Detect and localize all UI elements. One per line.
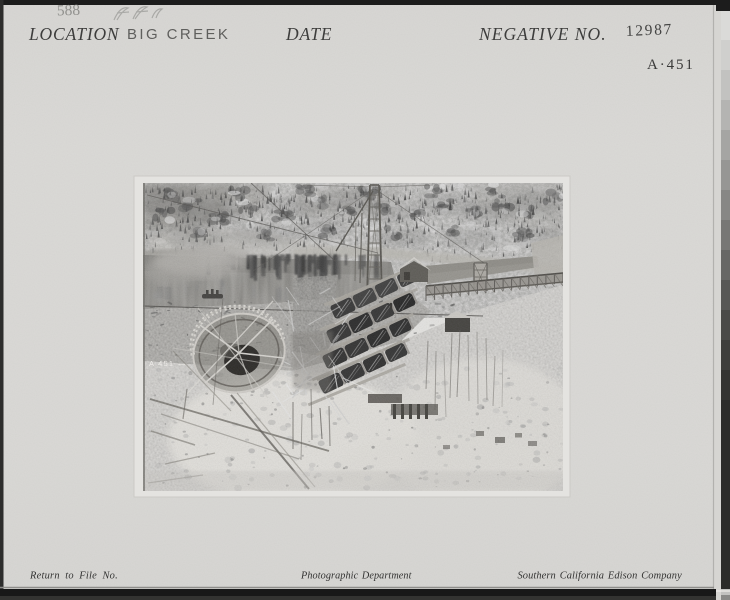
svg-text:Photographic Department: Photographic Department xyxy=(300,571,413,582)
svg-text:12987: 12987 xyxy=(625,21,673,40)
svg-text:LOCATION: LOCATION xyxy=(28,24,120,44)
svg-text:Return to File No.: Return to File No. xyxy=(29,571,118,582)
svg-text:588: 588 xyxy=(57,2,81,20)
svg-text:NEGATIVE NO.: NEGATIVE NO. xyxy=(478,24,607,44)
svg-text:DATE: DATE xyxy=(285,24,332,44)
svg-text:BIG CREEK: BIG CREEK xyxy=(127,26,230,43)
svg-text:A·451: A·451 xyxy=(647,57,695,73)
svg-text:Southern California Edison Com: Southern California Edison Company xyxy=(518,571,683,582)
